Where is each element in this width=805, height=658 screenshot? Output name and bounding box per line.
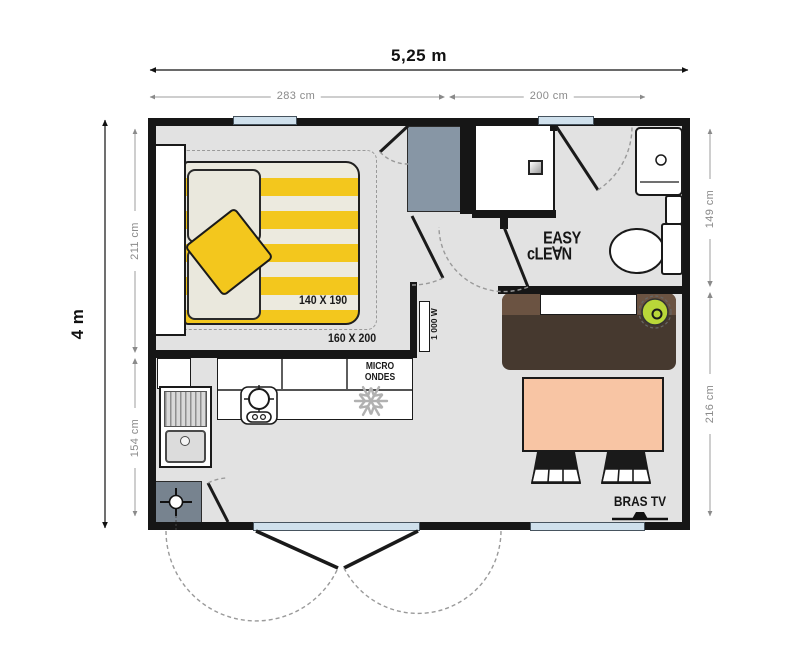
easy-clean-logo: EASY cLE∀N	[527, 230, 581, 262]
mattress-size-label: 140 X 190	[299, 293, 347, 307]
dim-height-left-bottom: 154 cm	[126, 408, 144, 468]
dim-height-right-bottom: 216 cm	[701, 374, 719, 434]
window-bedroom-top	[233, 116, 297, 125]
dim-width-left: 283 cm	[271, 89, 321, 103]
outer-walls	[148, 118, 690, 530]
window-living-bottom	[530, 522, 645, 531]
dim-width-total: 5,25 m	[391, 46, 447, 66]
dim-height-left-top: 211 cm	[126, 211, 144, 271]
dim-width-right: 200 cm	[524, 89, 574, 103]
microwave-label: MICRO ONDES	[352, 361, 408, 383]
bed-footprint-label: 160 X 200	[328, 331, 376, 345]
heater-power-label: 1 000 W	[429, 298, 439, 350]
logo-line-2: cLE∀N	[527, 246, 581, 262]
window-bathroom-top	[538, 116, 594, 125]
dim-height-right-top: 149 cm	[701, 179, 719, 239]
tv-bracket-label: BRAS TV	[609, 493, 670, 509]
dim-height-total: 4 m	[70, 294, 86, 354]
entry-door-glazing	[253, 522, 420, 531]
floor-plan-canvas: 5,25 m 283 cm 200 cm 4 m 211 cm 154 cm 1…	[0, 0, 805, 658]
